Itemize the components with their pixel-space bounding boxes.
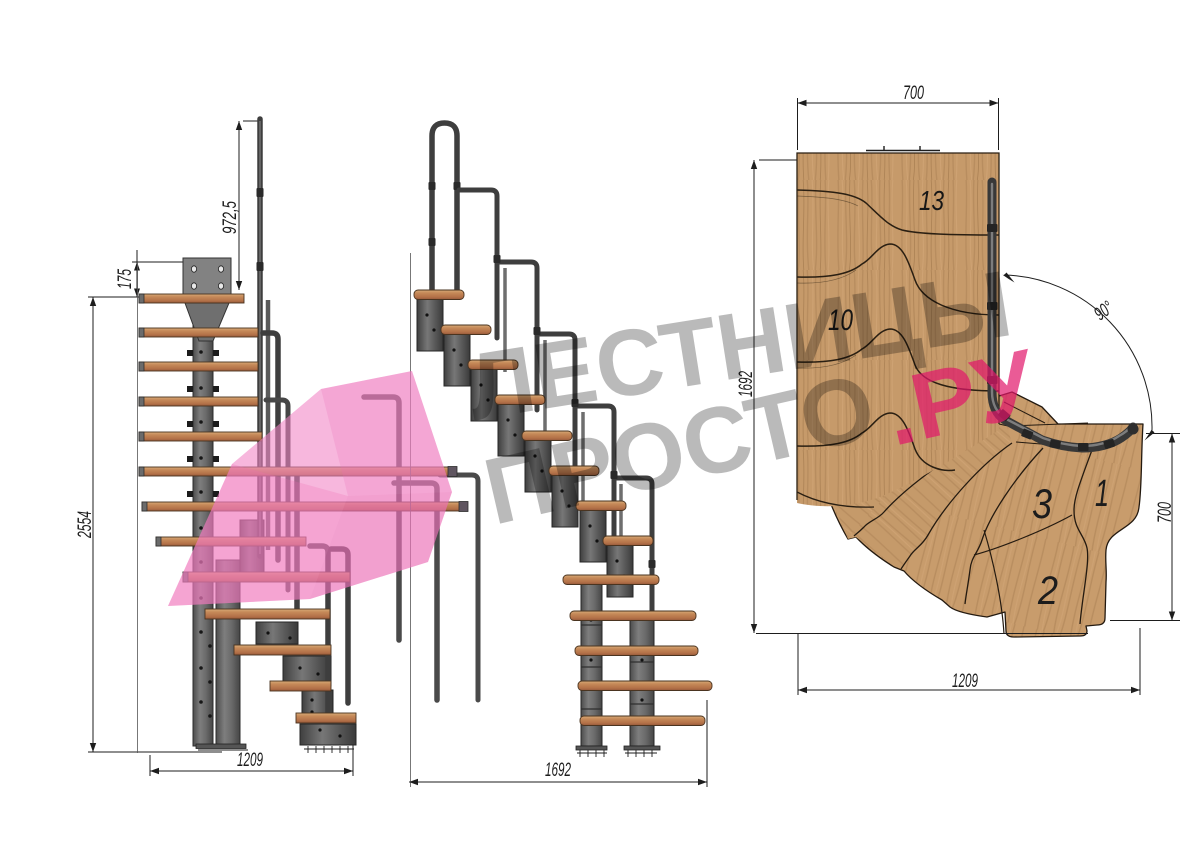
svg-text:2554: 2554 [75,511,96,539]
svg-text:13: 13 [919,185,944,216]
svg-text:700: 700 [1155,502,1176,523]
svg-text:2: 2 [1037,569,1058,613]
svg-text:1209: 1209 [237,750,263,771]
svg-text:700: 700 [903,83,924,104]
svg-text:3: 3 [1032,480,1052,527]
svg-text:972,5: 972,5 [220,201,241,234]
svg-text:175: 175 [115,269,136,289]
svg-text:1209: 1209 [952,671,978,692]
svg-text:1: 1 [1095,473,1109,515]
svg-text:1692: 1692 [545,760,571,781]
